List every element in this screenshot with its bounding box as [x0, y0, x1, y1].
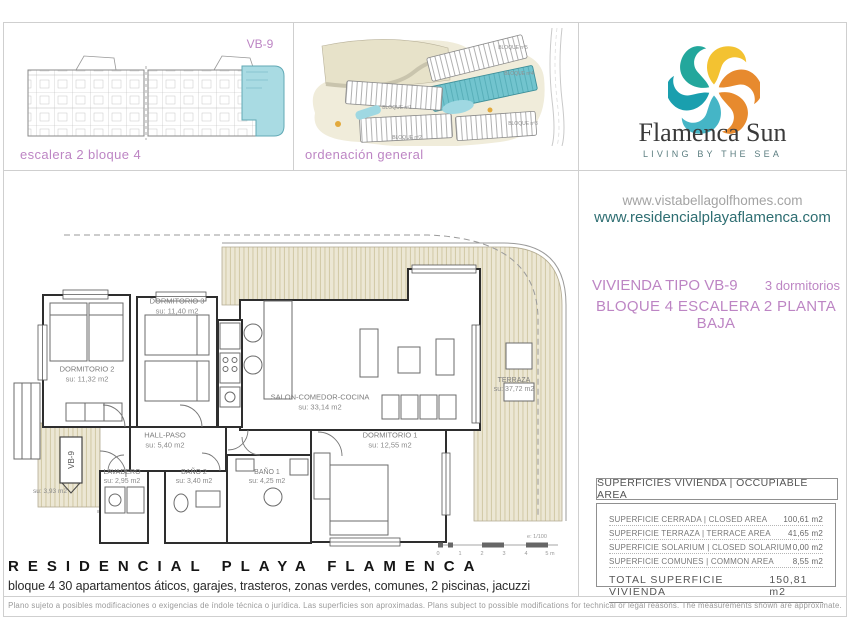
floor-plan: VB-9 0 1 2 3 4 5 m e: 1/100 DORMITORIO 3… [8, 225, 578, 570]
svg-text:e: 1/100: e: 1/100 [527, 534, 547, 540]
room-label-dormitorio-2: DORMITORIO 2su: 11,32 m2 [60, 364, 115, 384]
divider-horizontal-top [3, 170, 847, 171]
table-row-total: TOTAL SUPERFICIE VIVIENDA150,81 m2 [609, 574, 823, 603]
room-label-dormitorio-3: DORMITORIO 3su: 11,40 m2 [150, 296, 205, 316]
svg-text:0: 0 [436, 551, 439, 557]
site-plan-drawing [300, 28, 575, 146]
frame-right [846, 22, 847, 617]
room-label-dormitorio-1: DORMITORIO 1su: 12,55 m2 [363, 430, 418, 450]
site-block-3-label: BLOQUE nº3 [508, 122, 538, 128]
site-plan-caption: ordenación general [305, 147, 424, 162]
scale-bar: 0 1 2 3 4 5 m e: 1/100 [436, 534, 558, 557]
brand-url-vistabella: www.vistabellagolfhomes.com [578, 193, 847, 208]
project-title: RESIDENCIAL PLAYA FLAMENCA [8, 558, 483, 575]
table-row-common-area: SUPERFICIE COMUNES | COMMON AREA8,55 m2 [609, 554, 823, 568]
project-subtitle: bloque 4 30 apartamentos áticos, garajes… [8, 579, 574, 593]
frame-top [3, 22, 847, 23]
divider-vertical-right-column [578, 22, 579, 596]
room-label-salon-comedor-cocina: SALON-COMEDOR-COCINAsu: 33,14 m2 [271, 392, 370, 412]
unit-type-label: VIVIENDA TIPO VB-9 [592, 277, 738, 294]
disclaimer-text: Plano sujeto a posibles modificaciones o… [3, 601, 847, 610]
brand-url-playaflamenca: www.residencialplayaflamenca.com [578, 209, 847, 226]
svg-text:2: 2 [480, 551, 483, 557]
porch-sign-label: VB-9 [67, 451, 76, 469]
svg-text:5 m: 5 m [545, 551, 555, 557]
panel-block-plan: VB-9 [18, 26, 290, 146]
areas-table-header: SUPERFICIES VIVIENDA | OCCUPIABLE AREA [596, 478, 838, 500]
room-label-terraza: TERRAZAsu: 37,72 m2 [494, 376, 534, 394]
site-block-5-label: BLOQUE nº5 [498, 46, 528, 52]
areas-table: SUPERFICIE CERRADA | CLOSED AREA100,61 m… [596, 503, 836, 587]
unit-callout-label: VB-9 [247, 37, 274, 51]
plan-sheet: VB-9 escalera 2 bloque 4 [0, 0, 850, 620]
site-block-2-label: BLOQUE nº2 [392, 136, 422, 142]
svg-text:1: 1 [458, 551, 461, 557]
table-row-terrace-area: SUPERFICIE TERRAZA | TERRACE AREA41,65 m… [609, 526, 823, 540]
svg-text:3: 3 [502, 551, 505, 557]
room-label-porch-area: su: 3,93 m2 [33, 488, 67, 496]
table-row-closed-area: SUPERFICIE CERRADA | CLOSED AREA100,61 m… [609, 512, 823, 526]
room-label-bano-2: BAÑO 2su: 3,40 m2 [176, 468, 213, 486]
divider-vertical-panels [293, 22, 294, 170]
room-label-bano-1: BAÑO 1su: 4,25 m2 [249, 468, 286, 486]
unit-location-label: BLOQUE 4 ESCALERA 2 PLANTA BAJA [592, 298, 840, 332]
block-plan-drawing: VB-9 [18, 26, 290, 146]
frame-left [3, 22, 4, 617]
frame-bottom [3, 616, 847, 617]
block-plan-caption: escalera 2 bloque 4 [20, 147, 141, 162]
table-row-solarium-area: SUPERFICIE SOLARIUM | CLOSED SOLARIUM0,0… [609, 540, 823, 554]
brand-name: Flamenca Sun [578, 118, 847, 148]
site-block-4-label: BLOQUE nº4 [504, 72, 534, 78]
site-block-1-label: BLOQUE nº1 [382, 106, 412, 112]
panel-site-plan: BLOQUE nº5 BLOQUE nº4 BLOQUE nº1 BLOQUE … [300, 28, 575, 146]
room-label-hall-paso: HALL-PASOsu: 5,40 m2 [144, 430, 186, 450]
room-label-lavadero: LAVADEROsu: 2,95 m2 [103, 468, 140, 486]
brand-tagline: LIVING BY THE SEA [578, 149, 847, 159]
unit-info: VIVIENDA TIPO VB-9 3 dormitorios BLOQUE … [592, 277, 840, 332]
svg-text:4: 4 [524, 551, 527, 557]
unit-bedrooms-label: 3 dormitorios [765, 278, 840, 293]
